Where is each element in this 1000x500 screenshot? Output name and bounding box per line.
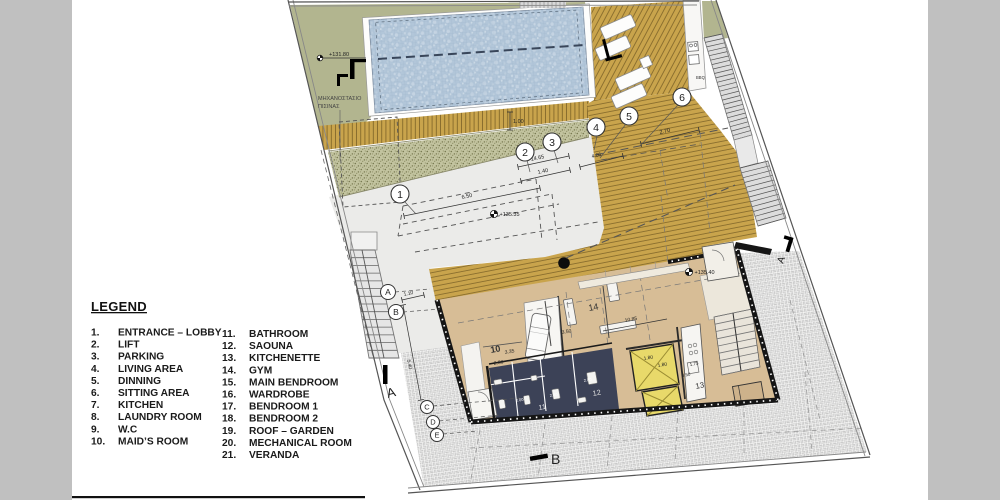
svg-text:2.: 2. — [91, 340, 100, 351]
svg-text:1.: 1. — [91, 328, 100, 339]
svg-text:15.: 15. — [222, 377, 236, 388]
svg-text:12: 12 — [592, 388, 602, 398]
svg-text:MECHANICAL ROOM: MECHANICAL ROOM — [249, 438, 352, 449]
svg-text:+131.80: +131.80 — [329, 52, 349, 58]
svg-text:BATHROOM: BATHROOM — [249, 329, 308, 340]
svg-text:16.: 16. — [222, 390, 236, 401]
svg-text:D: D — [430, 418, 436, 427]
svg-text:E: E — [434, 431, 439, 440]
svg-text:ROOF – GARDEN: ROOF – GARDEN — [249, 426, 334, 437]
svg-text:ENTRANCE – LOBBY: ENTRANCE – LOBBY — [118, 328, 222, 339]
svg-text:17.: 17. — [222, 402, 236, 413]
svg-text:ΠΙΣΙΝΑΣ: ΠΙΣΙΝΑΣ — [318, 104, 340, 110]
svg-text:5: 5 — [626, 111, 632, 123]
svg-text:3.: 3. — [91, 352, 100, 363]
svg-text:14.: 14. — [222, 365, 236, 376]
svg-text:SITTING AREA: SITTING AREA — [118, 388, 190, 399]
svg-text:ΜΗΧΑΝΟΣΤΑΣΙΟ: ΜΗΧΑΝΟΣΤΑΣΙΟ — [318, 96, 362, 102]
svg-text:MAIN BENDROOM: MAIN BENDROOM — [249, 377, 338, 388]
svg-text:4: 4 — [593, 122, 599, 134]
svg-text:A: A — [385, 287, 391, 297]
svg-text:4.: 4. — [91, 364, 100, 375]
svg-text:BBQ: BBQ — [696, 75, 706, 80]
svg-text:BENDROOM 2: BENDROOM 2 — [249, 414, 318, 425]
svg-text:11: 11 — [538, 404, 546, 412]
svg-text:5.: 5. — [91, 376, 100, 387]
svg-text:+135.40: +135.40 — [695, 270, 715, 276]
svg-text:B: B — [393, 307, 399, 317]
svg-text:19.: 19. — [222, 426, 236, 437]
svg-text:C: C — [424, 403, 430, 412]
svg-text:+135.35: +135.35 — [500, 212, 520, 218]
svg-text:20.: 20. — [222, 438, 236, 449]
svg-text:VERANDA: VERANDA — [249, 450, 300, 461]
svg-text:11.: 11. — [222, 329, 236, 340]
svg-text:WARDROBE: WARDROBE — [249, 390, 310, 401]
svg-text:KITCHENETTE: KITCHENETTE — [249, 353, 321, 364]
svg-text:SAOUNA: SAOUNA — [249, 341, 294, 352]
svg-text:DINNING: DINNING — [118, 376, 161, 387]
svg-text:GYM: GYM — [249, 365, 272, 376]
svg-text:LAUNDRY ROOM: LAUNDRY ROOM — [118, 412, 202, 423]
svg-text:21.: 21. — [222, 450, 236, 461]
svg-text:14: 14 — [588, 301, 600, 313]
svg-text:1.00: 1.00 — [513, 119, 524, 125]
svg-text:18.: 18. — [222, 414, 236, 425]
svg-text:13.: 13. — [222, 353, 236, 364]
svg-text:9.: 9. — [91, 424, 100, 435]
svg-text:BENDROOM 1: BENDROOM 1 — [249, 402, 318, 413]
svg-text:10: 10 — [490, 343, 502, 355]
svg-text:W.C: W.C — [118, 424, 138, 435]
svg-text:3: 3 — [549, 137, 555, 149]
svg-text:6.: 6. — [91, 388, 100, 399]
svg-text:LEGEND: LEGEND — [91, 299, 147, 314]
svg-text:2: 2 — [522, 147, 528, 159]
svg-text:PARKING: PARKING — [118, 352, 164, 363]
svg-text:7.: 7. — [91, 400, 100, 411]
svg-text:LIFT: LIFT — [118, 340, 140, 351]
svg-text:6: 6 — [679, 92, 685, 104]
svg-text:MAID’S ROOM: MAID’S ROOM — [118, 436, 188, 447]
svg-text:12.: 12. — [222, 341, 236, 352]
svg-text:8.: 8. — [91, 412, 100, 423]
svg-text:LIVING AREA: LIVING AREA — [118, 364, 184, 375]
svg-text:10.: 10. — [91, 436, 105, 447]
svg-text:B: B — [551, 451, 560, 467]
svg-text:1: 1 — [397, 189, 403, 201]
svg-text:KITCHEN: KITCHEN — [118, 400, 163, 411]
